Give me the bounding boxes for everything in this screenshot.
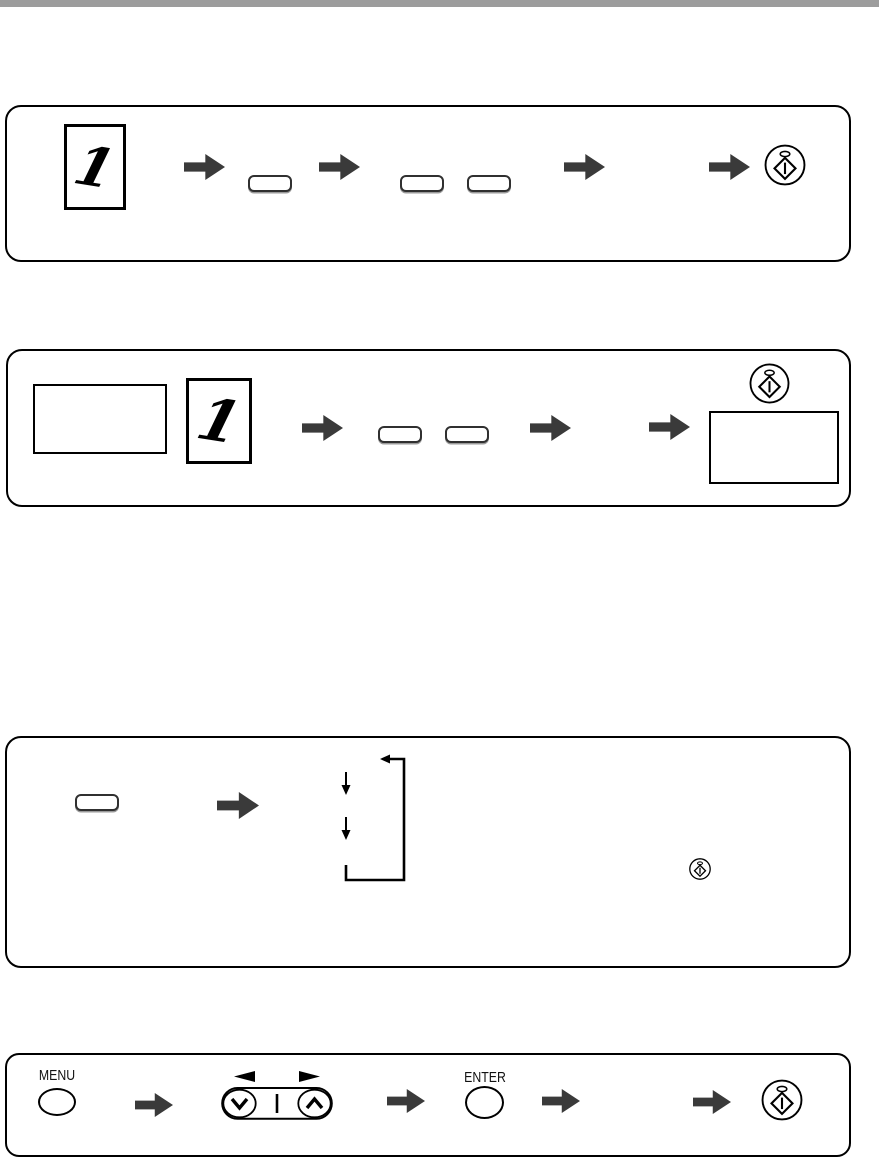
start-key-icon — [749, 363, 790, 404]
enter-key-oval — [465, 1086, 504, 1119]
procedure-panel-menu-cycle — [5, 736, 851, 968]
flow-arrow-icon — [709, 154, 750, 180]
panel-key-icon — [75, 794, 119, 811]
menu-key-oval — [38, 1088, 76, 1116]
flow-arrow-icon — [135, 1093, 173, 1117]
manual-page: 1 1 — [0, 0, 879, 1159]
flow-arrow-icon — [564, 154, 605, 180]
procedure-panel-copy: 1 — [5, 105, 851, 262]
flow-arrow-icon — [649, 414, 690, 440]
original-page-numeral: 1 — [69, 138, 120, 196]
scroll-rocker-key — [221, 1068, 333, 1120]
enter-key-label: ENTER — [464, 1069, 506, 1086]
flow-arrow-icon — [693, 1090, 731, 1114]
procedure-panel-menu-keys: MENU ENTER — [5, 1053, 851, 1157]
original-document-icon: 1 — [186, 378, 252, 464]
output-area-rect — [709, 411, 839, 484]
flow-arrow-icon — [530, 415, 571, 441]
display-area-rect — [33, 384, 167, 454]
panel-key-icon — [467, 175, 511, 192]
right-triangle-icon — [299, 1071, 320, 1082]
panel-key-icon — [378, 426, 422, 443]
start-key-icon — [764, 144, 806, 186]
procedure-panel-copy-result: 1 — [6, 349, 851, 507]
flow-arrow-icon — [542, 1089, 580, 1113]
left-triangle-icon — [234, 1071, 255, 1082]
page-header-bar — [0, 0, 879, 7]
panel-key-icon — [248, 175, 292, 192]
menu-key: MENU — [38, 1067, 76, 1117]
flow-arrow-icon — [217, 792, 259, 819]
flow-arrow-icon — [387, 1089, 425, 1113]
start-key-icon — [761, 1079, 803, 1121]
repeat-loop-icon — [332, 747, 422, 897]
flow-arrow-icon — [184, 154, 225, 180]
enter-key: ENTER — [465, 1068, 504, 1120]
original-document-icon: 1 — [64, 124, 126, 210]
panel-key-icon — [445, 426, 489, 443]
original-page-numeral: 1 — [192, 390, 247, 453]
flow-arrow-icon — [302, 415, 343, 441]
menu-key-label: MENU — [39, 1067, 75, 1084]
flow-arrow-icon — [319, 154, 360, 180]
panel-key-icon — [400, 175, 444, 192]
start-key-icon-small — [689, 858, 711, 880]
